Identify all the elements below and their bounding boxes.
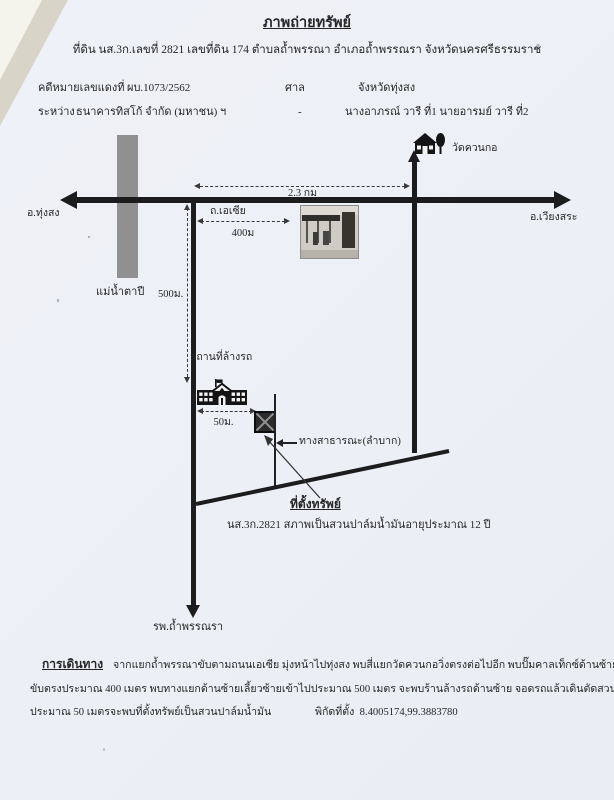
east-destination-label: อ.เวียงสระ: [530, 211, 577, 224]
scan-speck: [103, 748, 105, 751]
road-arrow-west-icon: [60, 191, 77, 209]
scanned-document-page: ภาพถ่ายทรัพย์ ที่ดิน นส.3ก.เลขที่ 2821 เ…: [0, 0, 614, 800]
dimension-arrow-icon: [184, 377, 190, 383]
versus-dash: -: [298, 106, 302, 120]
river-label: แม่น้ำตาปี: [96, 286, 144, 300]
page-subtitle: ที่ดิน นส.3ก.เลขที่ 2821 เลขที่ดิน 174 ต…: [0, 43, 614, 57]
coordinates-label: พิกัดที่ตั้ง: [315, 707, 354, 718]
directions-heading: การเดินทาง: [42, 657, 103, 672]
scan-speck: [88, 236, 90, 238]
temple-icon: [413, 131, 446, 157]
map-diagonal-lines: [0, 0, 614, 800]
court-label: ศาล: [285, 82, 305, 96]
coordinates: พิกัดที่ตั้ง 8.4005174,99.3883780: [315, 706, 458, 719]
distance-50m-label: 50ม.: [198, 416, 249, 429]
public-way-label: ทางสาธารณะ(ลำบาก): [299, 435, 401, 448]
site-note: นส.3ก.2821 สภาพเป็นสวนปาล์มน้ำมันอายุประ…: [227, 519, 490, 533]
dimension-line-500m: [187, 208, 188, 377]
property-marker-icon: [254, 411, 276, 433]
asia-road-label: ถ.เอเซีย: [210, 205, 246, 218]
carwash-label: สถานที่ล้างรถ: [190, 351, 252, 364]
site-heading: ที่ตั้งทรัพย์: [290, 497, 341, 512]
public-way-pointer: [282, 442, 297, 444]
directions-line2: ขับตรงประมาณ 400 เมตร พบทางแยกด้านซ้ายเล…: [30, 683, 614, 696]
scan-speck: [57, 299, 59, 302]
dimension-arrow-icon: [197, 408, 203, 414]
plaintiff-name: ธนาคารทิสโก้ จำกัด (มหาชน) ฯ: [76, 106, 226, 120]
directions-line1: จากแยกถ้ำพรรณาขับตามถนนเอเซีย มุ่งหน้าไป…: [113, 659, 614, 672]
river-band: [117, 135, 138, 278]
case-number-label: คดีหมายเลขแดงที่: [38, 82, 125, 96]
dimension-arrow-icon: [184, 204, 190, 210]
distance-500m-label: 500ม.: [158, 288, 183, 301]
dimension-line-400m: [201, 221, 285, 222]
between-label: ระหว่าง: [38, 106, 75, 120]
hospital-label: รพ.ถ้ำพรรณรา: [153, 621, 223, 635]
west-destination-label: อ.ทุ่งสง: [27, 207, 60, 220]
road-arrow-east-icon: [554, 191, 571, 209]
coordinates-value: 8.4005174,99.3883780: [360, 707, 458, 718]
directions-line3: ประมาณ 50 เมตรจะพบที่ตั้งทรัพย์เป็นสวนปา…: [30, 706, 271, 719]
page-title: ภาพถ่ายทรัพย์: [0, 14, 614, 32]
dimension-line-50m: [201, 411, 252, 412]
dimension-arrow-icon: [197, 218, 203, 224]
case-number-value: ผบ.1073/2562: [127, 82, 190, 96]
court-value: จังหวัดทุ่งสง: [358, 82, 415, 96]
distance-400m-label: 400ม: [201, 227, 285, 240]
gas-station-photo: [300, 205, 359, 259]
pointer-arrow-icon: [276, 439, 283, 447]
defendant-name: นางอาภรณ์ วารี ที่1 นายอารมย์ วารี ที่2: [345, 106, 529, 120]
dimension-arrow-icon: [284, 218, 290, 224]
road-arrow-south-icon: [186, 605, 200, 618]
distance-2-3km-label: 2.3 กม: [200, 187, 405, 200]
carwash-building-icon: [196, 379, 248, 409]
temple-road: [412, 161, 417, 453]
temple-label: วัดควนกอ: [452, 142, 497, 155]
